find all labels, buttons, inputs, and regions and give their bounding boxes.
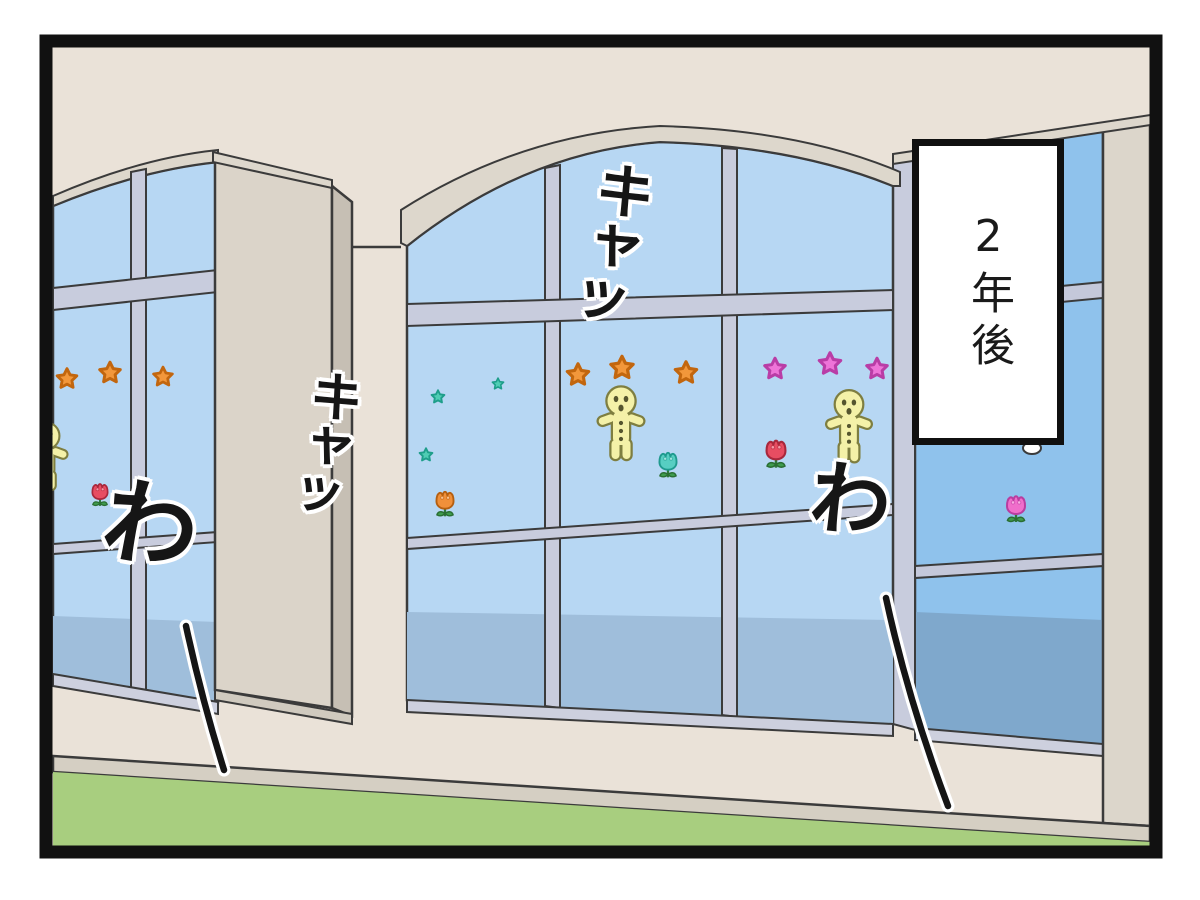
red-tulip-sticker bbox=[767, 441, 786, 468]
sfx-wa-right: わ bbox=[797, 452, 887, 542]
sfx-wa-left: わ bbox=[87, 466, 198, 577]
caption-text: 2年後 bbox=[956, 211, 1020, 374]
orange-tulip-sticker bbox=[436, 492, 453, 516]
comic-panel-page: 2年後 キャッ キャッ わ わ bbox=[0, 0, 1200, 900]
pink-tulip-sticker bbox=[1007, 496, 1025, 522]
wall-pier-right bbox=[1103, 118, 1150, 826]
caption-box: 2年後 bbox=[912, 139, 1064, 445]
teal-tulip-sticker bbox=[659, 453, 676, 477]
panel-artwork bbox=[0, 0, 1200, 900]
